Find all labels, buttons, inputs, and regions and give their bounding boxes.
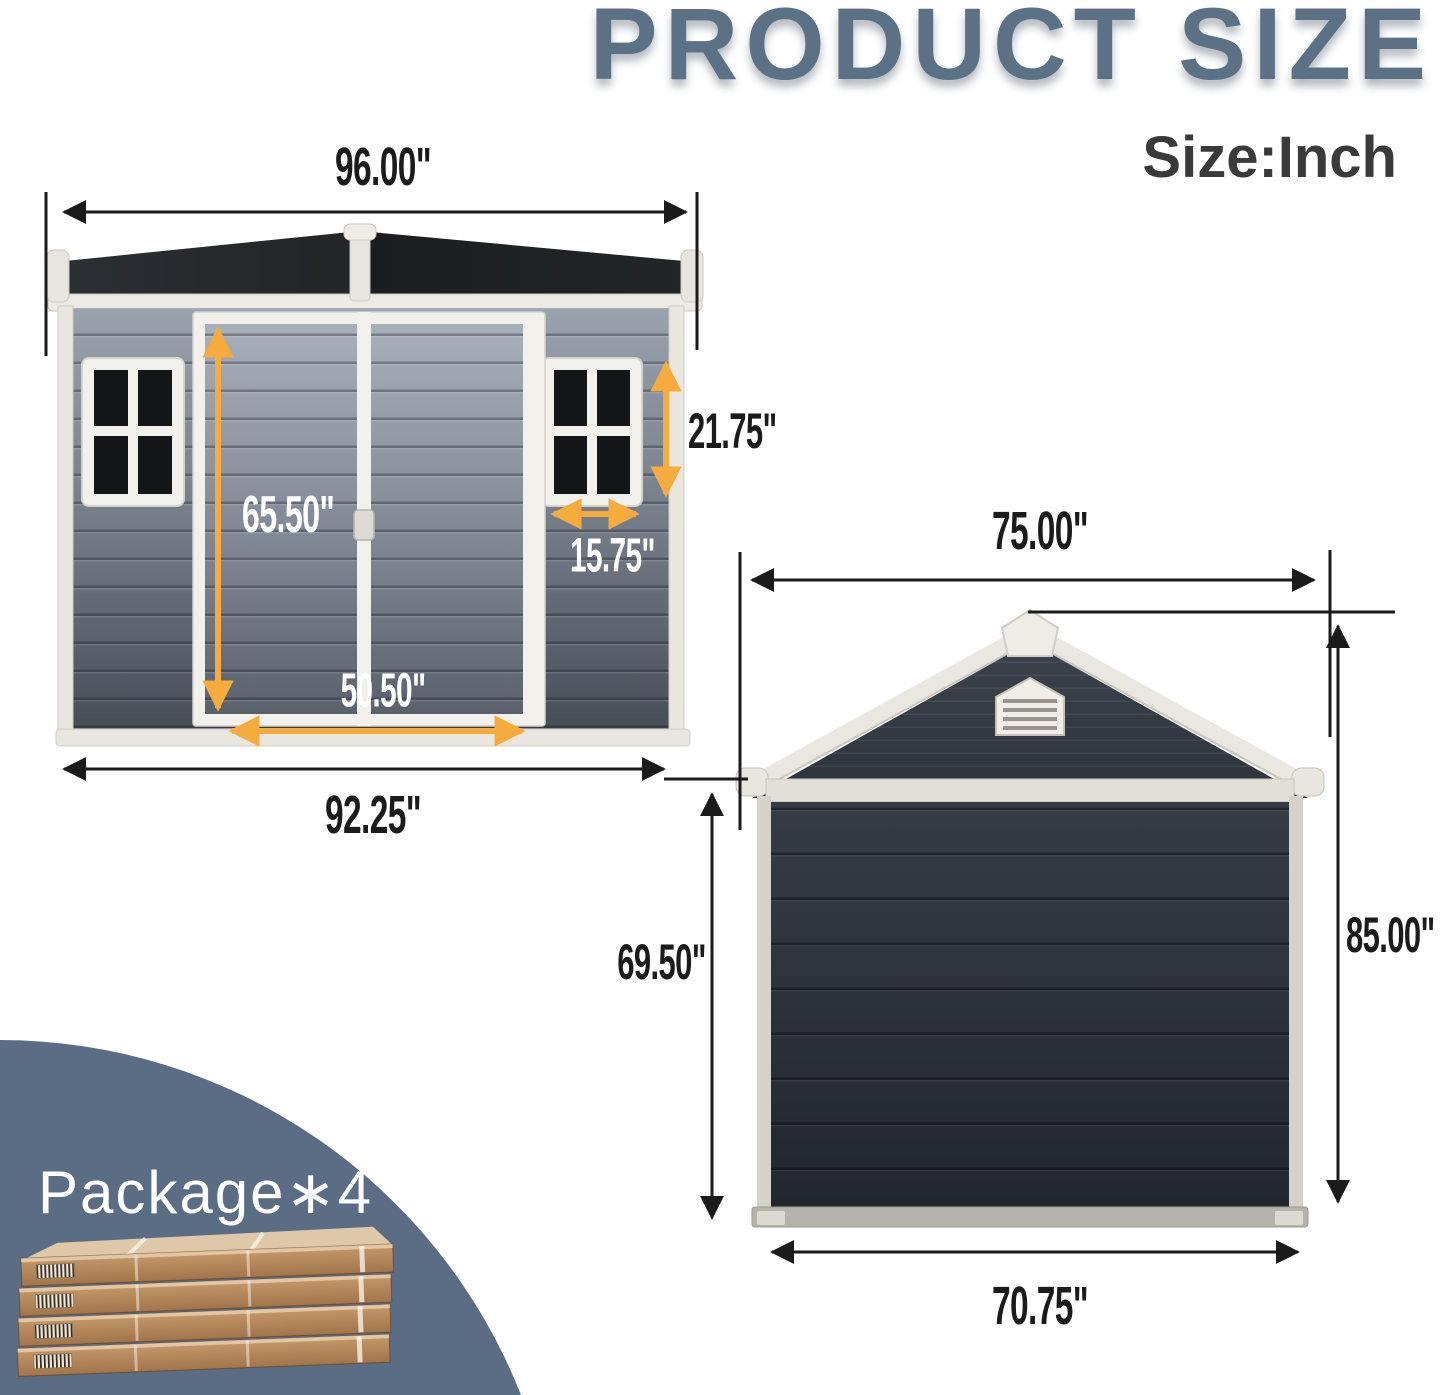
back-ridge-cap	[1002, 610, 1058, 656]
front-door-width-label: 50.50"	[341, 664, 426, 719]
front-roof	[47, 224, 703, 311]
back-view-shed	[736, 610, 1324, 1227]
package-count-label: Package∗4	[38, 1158, 373, 1228]
front-roof-width-label: 96.00"	[335, 136, 431, 198]
front-door-handle	[354, 510, 374, 540]
back-total-height-label: 85.00"	[1346, 906, 1435, 964]
front-window-height-label: 21.75"	[688, 402, 777, 460]
back-base-width-label: 70.75"	[992, 1275, 1088, 1337]
page-title: PRODUCT SIZE	[590, 0, 1433, 103]
front-body-width-label: 92.25"	[325, 784, 421, 846]
back-base	[752, 1207, 1308, 1227]
back-wall-height-label: 69.50"	[617, 933, 706, 991]
package-stack	[13, 1226, 397, 1376]
unit-label: Size:Inch	[1142, 124, 1397, 191]
product-size-infographic: PRODUCT SIZE Size:Inch 96.00" 65.50" 21.…	[0, 0, 1445, 1395]
front-window-width-label: 15.75"	[570, 529, 655, 584]
front-window-left	[82, 358, 184, 506]
back-roof-width-label: 75.00"	[992, 500, 1088, 562]
front-window-right	[542, 358, 642, 506]
front-door-height-label: 65.50"	[242, 485, 334, 545]
back-wall	[757, 779, 1303, 1212]
